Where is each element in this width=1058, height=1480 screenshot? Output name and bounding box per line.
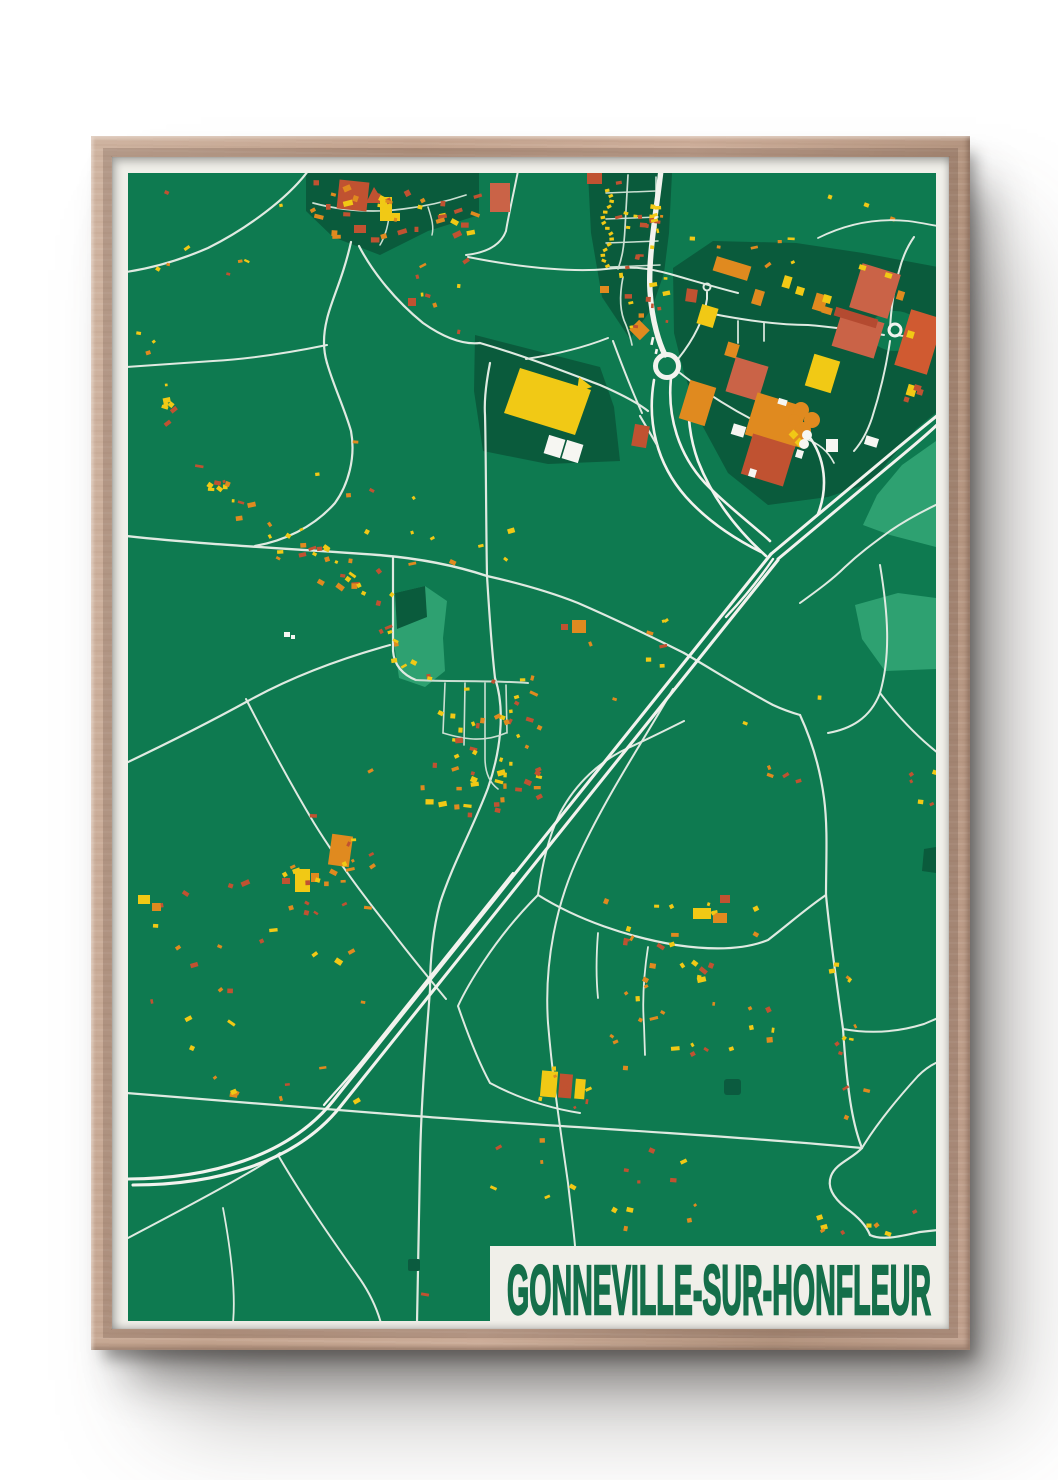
svg-text:GONNEVILLE-SUR-HONFLEUR: GONNEVILLE-SUR-HONFLEUR (507, 1251, 931, 1321)
